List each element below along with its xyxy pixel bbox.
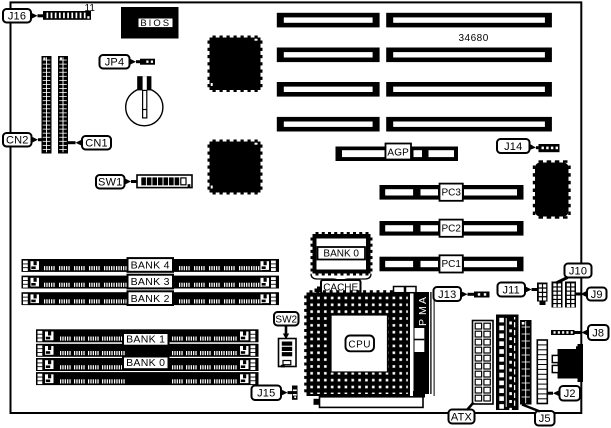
svg-text:CACHE: CACHE [323, 282, 358, 293]
svg-text:A: A [417, 297, 429, 304]
svg-text:J9: J9 [591, 289, 603, 301]
svg-text:SW2: SW2 [275, 315, 297, 326]
svg-text:PC2: PC2 [441, 223, 461, 234]
svg-text:11: 11 [85, 3, 96, 14]
svg-text:J16: J16 [8, 11, 26, 23]
svg-text:BANK 0: BANK 0 [323, 249, 359, 260]
svg-text:CPU: CPU [348, 339, 371, 350]
svg-text:M: M [417, 306, 429, 315]
svg-text:AGP: AGP [387, 147, 409, 158]
svg-text:J8: J8 [592, 327, 604, 339]
svg-text:ATX: ATX [451, 411, 473, 423]
svg-text:BANK 2: BANK 2 [131, 293, 170, 305]
svg-text:J2: J2 [564, 388, 576, 400]
svg-text:J10: J10 [569, 265, 587, 277]
svg-text:PC3: PC3 [441, 187, 461, 198]
svg-text:BANK 1: BANK 1 [126, 334, 165, 346]
svg-text:BANK 4: BANK 4 [131, 260, 170, 272]
svg-text:BIOS: BIOS [140, 18, 171, 29]
svg-text:CN1: CN1 [85, 138, 108, 150]
svg-text:J13: J13 [438, 289, 456, 301]
svg-text:CN2: CN2 [6, 135, 29, 147]
svg-text:BANK 3: BANK 3 [131, 276, 170, 288]
svg-text:JP4: JP4 [105, 57, 125, 69]
svg-text:34680: 34680 [459, 33, 489, 44]
svg-text:BANK 0: BANK 0 [126, 357, 165, 369]
svg-text:SW1: SW1 [98, 177, 122, 189]
svg-text:PC1: PC1 [441, 259, 461, 270]
svg-text:J15: J15 [257, 388, 275, 400]
svg-text:J14: J14 [504, 141, 522, 153]
svg-text:P: P [417, 319, 429, 326]
svg-text:J5: J5 [539, 413, 551, 425]
svg-text:J11: J11 [502, 284, 520, 296]
